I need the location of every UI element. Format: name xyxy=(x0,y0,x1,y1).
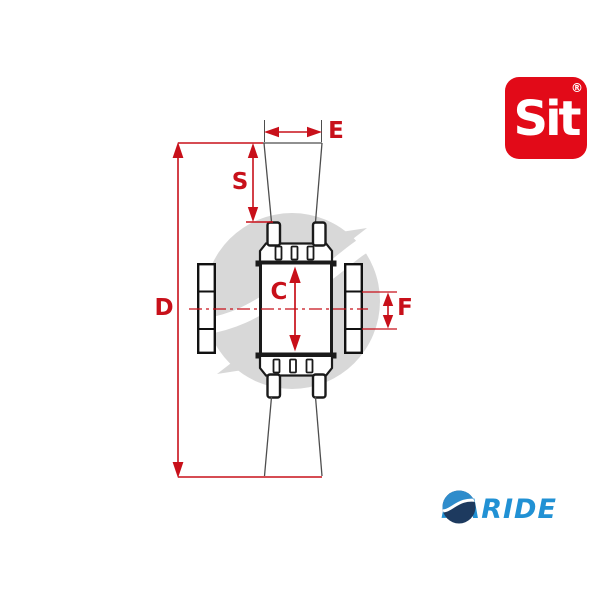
dimension-label-d: D xyxy=(151,297,177,320)
sit-logo: Sit ® xyxy=(505,77,587,159)
dimension-e xyxy=(264,127,322,137)
product-diagram-image: D S E C F Sit ® PARIDE xyxy=(0,0,600,600)
dimension-label-c: C xyxy=(266,281,292,304)
dimension-label-e: E xyxy=(323,120,349,143)
shaft-top xyxy=(263,120,322,222)
shaft-bottom xyxy=(265,397,323,476)
registered-trademark-icon: ® xyxy=(571,81,583,95)
dimension-label-f: F xyxy=(392,297,418,320)
paride-sphere-icon xyxy=(441,489,477,525)
dimension-label-s: S xyxy=(227,171,253,194)
paride-logo: PARIDE xyxy=(441,489,557,529)
